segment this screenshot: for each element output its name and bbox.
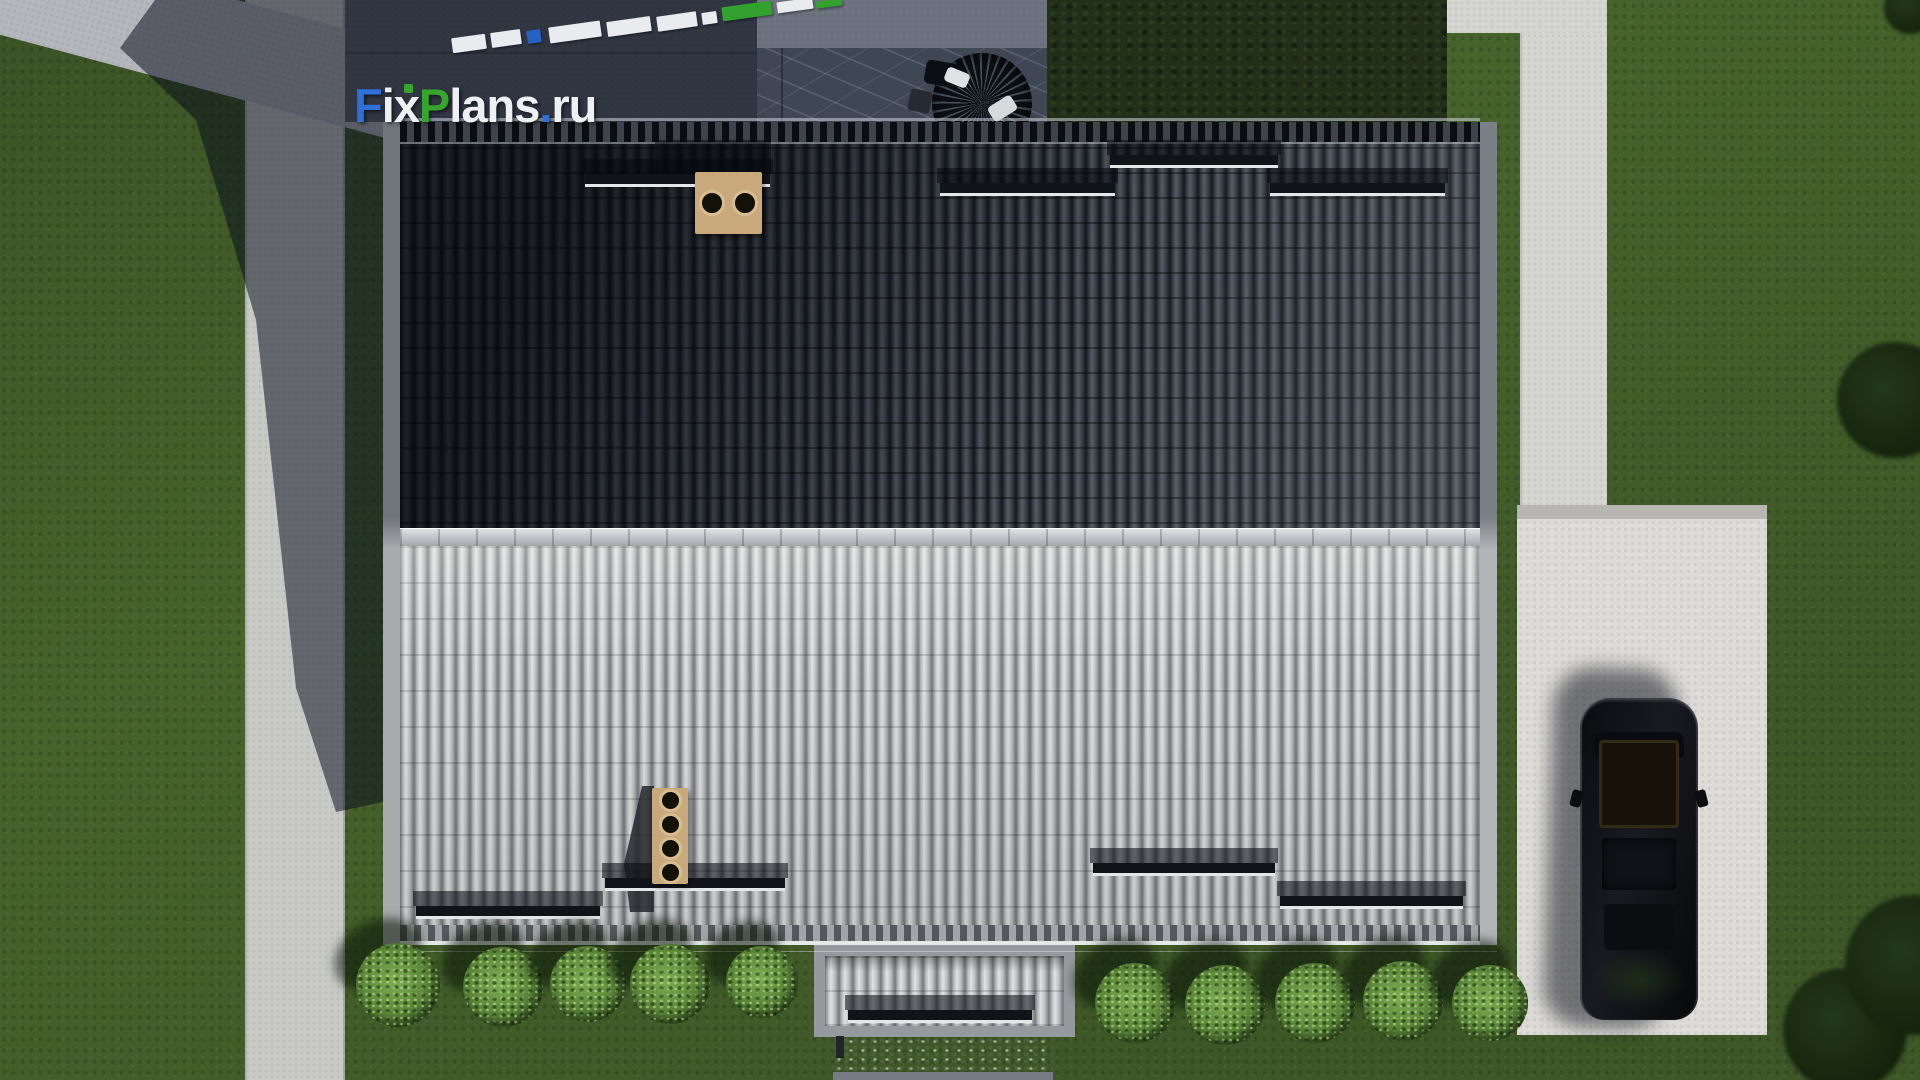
watermark-segment: ru — [551, 79, 596, 132]
chimney-flue — [699, 190, 725, 216]
snow-guard-bar — [1270, 183, 1445, 193]
snow-guard-bar — [848, 1010, 1032, 1020]
porch-post — [836, 1036, 844, 1058]
concrete-joint-line — [345, 52, 757, 54]
chimney-flue — [659, 813, 682, 836]
snow-guard-rail — [1280, 906, 1463, 909]
snow-guard-shadow — [1090, 848, 1278, 863]
watermark-segment: F — [354, 79, 382, 132]
porch-step — [833, 1072, 1053, 1080]
roof-fascia-left — [383, 122, 400, 945]
watermark-segment: . — [539, 79, 551, 132]
chimney-flue — [659, 789, 682, 812]
snow-guard-rail — [1270, 193, 1445, 196]
chimney — [695, 172, 762, 234]
parking-border — [1517, 505, 1767, 519]
snow-guard-rail — [848, 1020, 1032, 1023]
snow-guard-rail — [416, 916, 600, 919]
snow-guard-rail — [940, 193, 1115, 196]
right-walk-h — [1447, 0, 1607, 33]
snow-guard-shadow — [1267, 168, 1448, 183]
snow-guard-shadow — [845, 995, 1035, 1010]
snow-guard-shadow — [602, 863, 788, 878]
roof-ridge — [400, 528, 1480, 546]
snow-guard-bar — [1093, 863, 1275, 873]
logo-3d-block — [526, 29, 542, 44]
right-walk-v — [1520, 33, 1607, 509]
bush — [1452, 965, 1528, 1041]
watermark-i-dot — [404, 84, 413, 93]
snow-guard-rail — [1093, 873, 1275, 876]
chimney-flue — [732, 190, 758, 216]
gable-bump-out — [814, 945, 1075, 1037]
car-tree-reflection — [1592, 950, 1686, 1010]
snow-guard-bar — [1280, 896, 1463, 906]
bush — [630, 944, 710, 1024]
bush — [726, 946, 798, 1018]
aerial-render: FixPlans.ru — [0, 0, 1920, 1080]
snow-guard-rail — [1110, 165, 1278, 168]
watermark-logo: FixPlans.ru — [354, 78, 596, 133]
car-sunroof — [1599, 740, 1679, 828]
snow-guard-rail — [605, 888, 785, 891]
snow-guard-shadow — [1107, 140, 1281, 155]
black-car — [1580, 698, 1698, 1020]
chimney — [652, 788, 688, 884]
watermark-segment: ix — [382, 79, 419, 132]
roof-fascia-right — [1480, 122, 1497, 945]
snow-guard-shadow — [413, 891, 603, 906]
car-mirror-left — [1569, 789, 1584, 808]
snow-guard-shadow — [1277, 881, 1466, 896]
watermark-segment: lans — [449, 79, 539, 132]
chimney-flue — [659, 861, 682, 884]
car-rear-window — [1604, 904, 1674, 950]
left-sidewalk — [245, 0, 345, 1080]
watermark-segment: P — [419, 79, 449, 132]
patio-table — [907, 88, 933, 114]
bush — [1095, 963, 1175, 1043]
snow-guard-bar — [416, 906, 600, 916]
bush — [356, 943, 440, 1027]
hedge — [1047, 0, 1447, 128]
snow-guard-shadow — [937, 168, 1118, 183]
snow-guard-bar — [1110, 155, 1278, 165]
car-roof-glass — [1602, 838, 1676, 890]
snow-guard-bar — [605, 878, 785, 888]
chimney-flue — [659, 837, 682, 860]
logo-3d-block — [701, 11, 718, 25]
snow-guard-bar — [940, 183, 1115, 193]
